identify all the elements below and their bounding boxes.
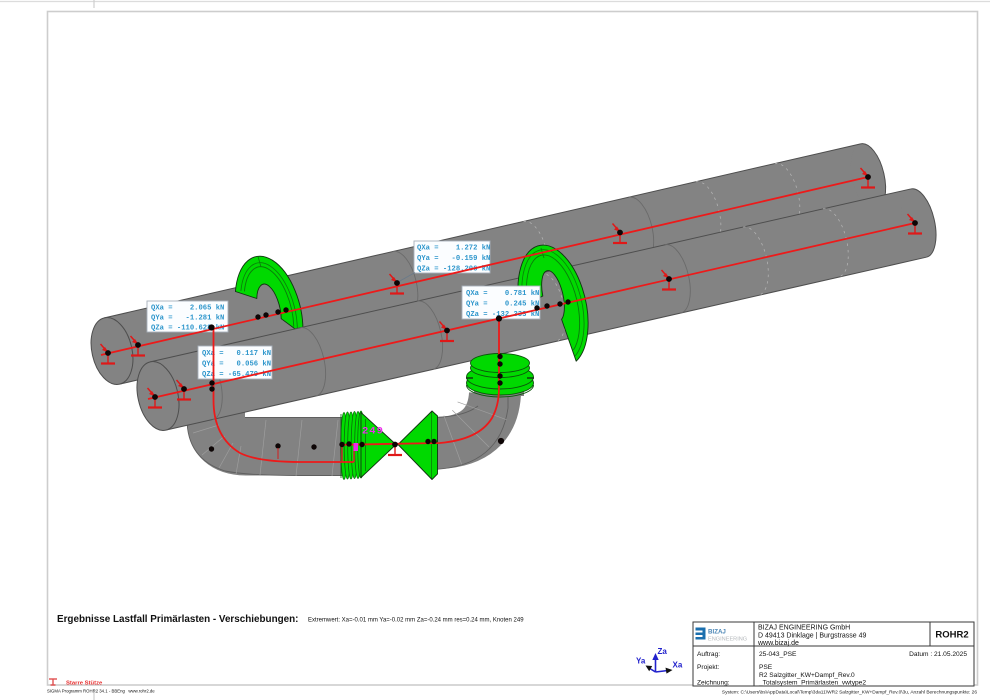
svg-text:QXa = 1.272 kN: QXa = 1.272 kN bbox=[417, 245, 490, 253]
svg-text:QYa = -0.159 kN: QYa = -0.159 kN bbox=[417, 255, 490, 263]
svg-text:25-043_PSE: 25-043_PSE bbox=[759, 651, 797, 658]
svg-text:Starre Stütze: Starre Stütze bbox=[66, 681, 103, 687]
svg-text:Extremwert: Xa=-0.01 mm Ya=-0.: Extremwert: Xa=-0.01 mm Ya=-0.02 mm Za=-… bbox=[308, 618, 524, 624]
svg-text:Xa: Xa bbox=[673, 661, 683, 670]
svg-text:QYa = -1.281 kN: QYa = -1.281 kN bbox=[151, 315, 224, 323]
svg-text:ROHR2: ROHR2 bbox=[935, 630, 968, 641]
svg-text:QYa = 0.245 kN: QYa = 0.245 kN bbox=[466, 301, 539, 309]
svg-text:249: 249 bbox=[362, 426, 384, 438]
svg-text:ENGINEERING: ENGINEERING bbox=[708, 637, 747, 643]
svg-text:PSE: PSE bbox=[759, 664, 773, 671]
svg-text:BIZAJ ENGINEERING GmbH: BIZAJ ENGINEERING GmbH bbox=[758, 625, 850, 632]
svg-text:_Totalsystem_Primärlasten_vwty: _Totalsystem_Primärlasten_vwtype2 bbox=[758, 680, 866, 687]
svg-text:Za: Za bbox=[658, 647, 668, 656]
svg-text:Projekt:: Projekt: bbox=[697, 664, 720, 671]
svg-text:SIGMA Programm ROHR2 34.1 - BB: SIGMA Programm ROHR2 34.1 - BBEng www.ro… bbox=[47, 689, 155, 694]
svg-text:System: C:\Users\bs\AppData\Lo: System: C:\Users\bs\AppData\Local\Temp\3… bbox=[722, 690, 977, 696]
svg-text:BIZAJ: BIZAJ bbox=[708, 629, 726, 636]
svg-text:QXa = 0.781 kN: QXa = 0.781 kN bbox=[466, 290, 539, 298]
svg-text:QYa = 0.056 kN: QYa = 0.056 kN bbox=[202, 361, 271, 369]
svg-text:Datum : 21.05.2025: Datum : 21.05.2025 bbox=[909, 651, 967, 658]
svg-text:D 49413 Dinklage | Burgstrasse: D 49413 Dinklage | Burgstrasse 49 bbox=[758, 633, 867, 640]
svg-text:Auftrag:: Auftrag: bbox=[697, 651, 720, 658]
svg-text:Zeichnung:: Zeichnung: bbox=[697, 680, 730, 687]
svg-text:Ya: Ya bbox=[636, 657, 646, 666]
svg-text:R2 Salzgitter_KW+Dampf_Rev.0: R2 Salzgitter_KW+Dampf_Rev.0 bbox=[759, 672, 855, 679]
svg-text:QXa = 2.065 kN: QXa = 2.065 kN bbox=[151, 305, 224, 313]
svg-text:QXa = 0.117 kN: QXa = 0.117 kN bbox=[202, 350, 271, 358]
svg-text:Ergebnisse Lastfall Primärlast: Ergebnisse Lastfall Primärlasten - Versc… bbox=[57, 614, 298, 625]
svg-text:www.bizaj.de: www.bizaj.de bbox=[757, 640, 799, 647]
